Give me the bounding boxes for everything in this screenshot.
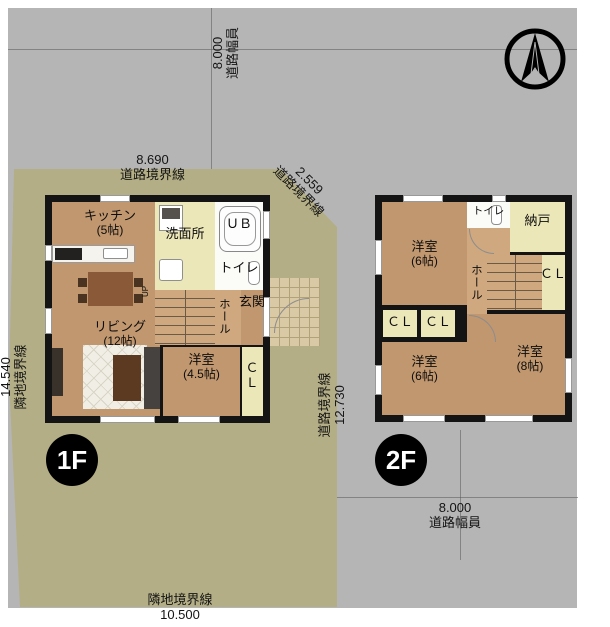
dim-bottom-road-value: 8.000 — [395, 500, 515, 515]
window — [178, 416, 220, 423]
label-closet-right: ＣＬ — [538, 267, 568, 282]
dim-top-boundary-value: 8.690 — [90, 152, 215, 167]
dim-bottom-boundary: 隣地境界線 10.500 — [115, 592, 245, 623]
dim-right-boundary: 道路境界線 12.730 — [317, 350, 351, 460]
coffee-table — [113, 355, 141, 401]
label-storeroom: 納戸 — [510, 214, 565, 229]
label-kitchen: キッチン (5帖) — [55, 209, 165, 237]
bottom-road-extension-line — [460, 430, 461, 560]
label-closet-1f: ＣＬ — [240, 361, 264, 390]
chair-icon — [78, 294, 87, 303]
label-toilet-1f: トイレ — [215, 261, 263, 276]
floor2-stairs — [487, 255, 542, 310]
floor1-plan: キッチン (5帖) 洗面所 ＵＢ トイレ ホール 玄関 リビング (12帖) 洋… — [45, 195, 270, 423]
floor1-badge: 1F — [46, 434, 98, 486]
dim-right-boundary-label: 道路境界線 — [317, 350, 332, 460]
window — [375, 365, 382, 395]
window — [100, 195, 130, 202]
dining-table — [88, 272, 133, 306]
floor2-plan: 洋室 (6帖) トイレ 納戸 ホール ＣＬ ＣＬ ＣＬ 洋室 (6帖) 洋室 (… — [375, 195, 572, 422]
label-stairs-up: UP — [142, 286, 151, 297]
label-toilet-2f: トイレ — [467, 206, 510, 218]
stove-icon — [55, 248, 82, 260]
washbasin-icon — [159, 259, 183, 281]
label-entrance: 玄関 — [236, 295, 268, 310]
label-bedroom-se: 洋室 (8帖) — [498, 345, 562, 373]
dim-bottom-boundary-label: 隣地境界線 — [115, 592, 245, 607]
window — [403, 415, 445, 422]
floor2-badge: 2F — [375, 434, 427, 486]
tv-board — [52, 348, 63, 396]
window — [100, 416, 155, 423]
window — [45, 308, 52, 334]
dim-bottom-boundary-value: 10.500 — [115, 607, 245, 622]
floor2-closet-right-room — [542, 255, 565, 310]
north-compass-icon — [503, 26, 567, 92]
kitchen-sink-icon — [103, 248, 128, 259]
dim-left-boundary: 14.540 隣地境界線 — [0, 322, 34, 432]
top-road-dim-line — [8, 49, 577, 50]
chair-icon — [78, 278, 87, 287]
dim-bottom-road-label: 道路幅員 — [395, 515, 515, 530]
window — [403, 195, 443, 202]
label-bedroom-sw: 洋室 (6帖) — [382, 355, 467, 383]
window — [492, 195, 506, 202]
dim-left-boundary-value: 14.540 — [0, 322, 13, 432]
window — [45, 245, 52, 261]
label-bedroom-nw: 洋室 (6帖) — [382, 240, 467, 268]
dim-left-boundary-label: 隣地境界線 — [13, 322, 28, 432]
window — [375, 240, 382, 275]
floorplan-canvas: 8.000 道路幅員 8.690 道路境界線 2.559 道路境界線 14.54… — [0, 0, 610, 627]
window — [485, 415, 533, 422]
label-hall-1f: ホール — [217, 291, 230, 343]
dim-bottom-road: 8.000 道路幅員 — [395, 500, 515, 531]
label-closet-b: ＣＬ — [421, 315, 455, 330]
label-closet-a: ＣＬ — [383, 315, 417, 330]
dim-top-road-value: 8.000 — [210, 0, 225, 108]
label-hall-2f: ホール — [469, 257, 482, 309]
dim-top-boundary: 8.690 道路境界線 — [90, 152, 215, 183]
label-bedroom-1f: 洋室 (4.5帖) — [163, 353, 240, 381]
bottom-road-dim-line — [337, 497, 578, 498]
sofa — [144, 347, 160, 409]
dim-right-boundary-value: 12.730 — [332, 350, 347, 460]
dim-top-road: 8.000 道路幅員 — [210, 0, 254, 108]
window — [565, 358, 572, 393]
dim-top-road-label: 道路幅員 — [225, 0, 240, 108]
label-bath: ＵＢ — [215, 217, 263, 232]
label-living: リビング (12帖) — [65, 320, 175, 348]
window — [263, 211, 270, 239]
label-washroom: 洗面所 — [155, 227, 215, 242]
dim-top-boundary-label: 道路境界線 — [90, 167, 215, 182]
